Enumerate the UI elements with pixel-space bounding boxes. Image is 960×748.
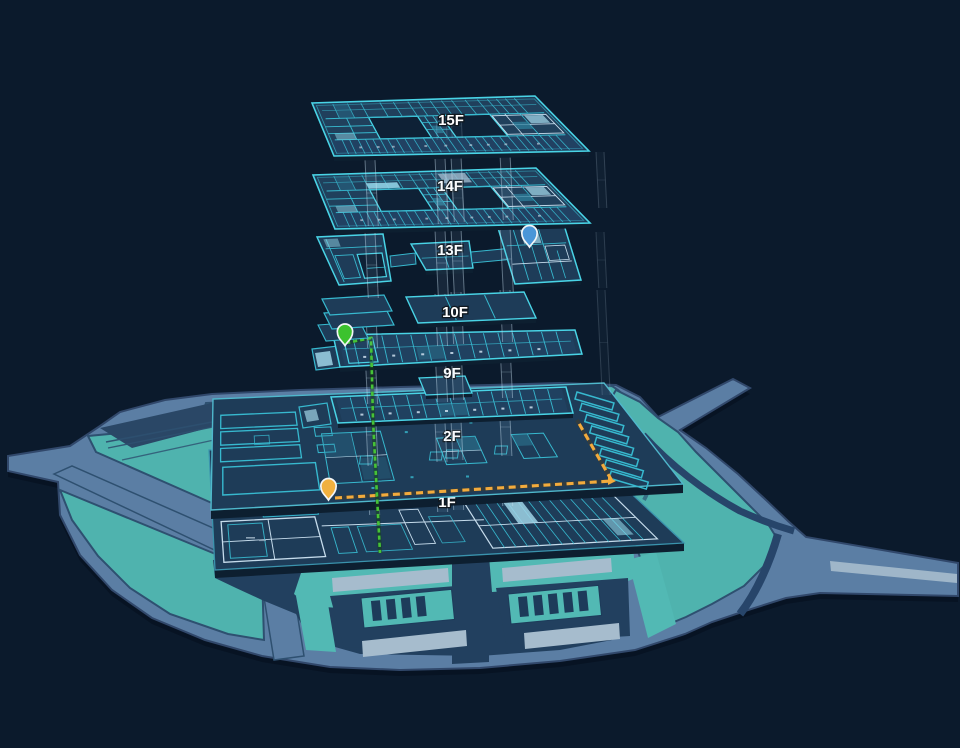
svg-text:10F: 10F [442,304,468,321]
svg-text:15F: 15F [438,112,464,129]
